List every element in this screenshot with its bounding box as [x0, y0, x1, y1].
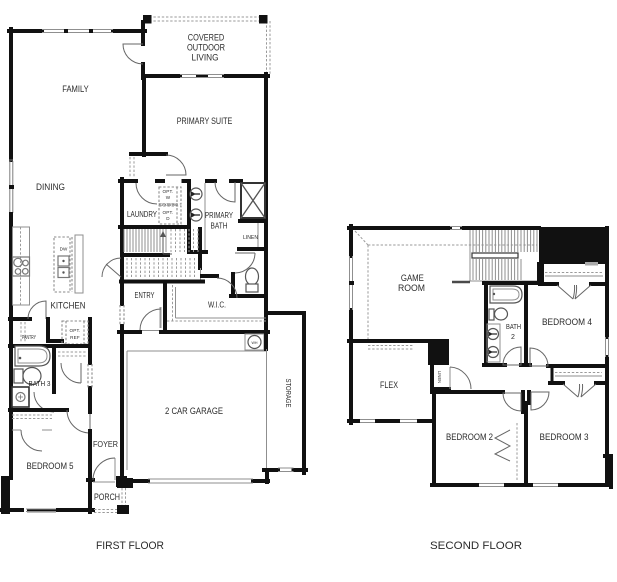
svg-text:COVERED: COVERED [188, 33, 225, 43]
svg-text:BATH: BATH [506, 324, 521, 331]
svg-text:ENTRY: ENTRY [135, 290, 155, 300]
svg-text:WH: WH [252, 341, 258, 345]
svg-text:LINEN: LINEN [437, 371, 442, 383]
svg-text:GAME: GAME [401, 273, 424, 283]
svg-text:W.I.C.: W.I.C. [208, 300, 226, 310]
svg-text:FAMILY: FAMILY [62, 84, 89, 94]
svg-text:PRIMARY SUITE: PRIMARY SUITE [177, 116, 233, 126]
svg-text:W: W [166, 195, 171, 200]
svg-text:DINING: DINING [36, 182, 65, 192]
svg-text:LIVING: LIVING [192, 53, 219, 63]
svg-text:FOYER: FOYER [93, 439, 118, 449]
svg-text:BEDROOM 5: BEDROOM 5 [27, 461, 74, 471]
svg-text:KITCHEN: KITCHEN [51, 301, 86, 311]
svg-text:D: D [166, 216, 170, 221]
svg-text:OPT.: OPT. [162, 210, 173, 215]
svg-text:ROOM: ROOM [398, 283, 425, 293]
svg-text:SECOND FLOOR: SECOND FLOOR [430, 540, 522, 552]
svg-text:LAUNDRY: LAUNDRY [127, 209, 157, 219]
svg-text:OPT.: OPT. [162, 189, 173, 194]
svg-text:BEDROOM 3: BEDROOM 3 [540, 432, 589, 442]
svg-text:BATH 3: BATH 3 [29, 381, 51, 388]
svg-text:FIRST FLOOR: FIRST FLOOR [96, 540, 164, 552]
svg-text:DW: DW [60, 247, 68, 252]
svg-text:PANTRY: PANTRY [22, 335, 36, 341]
svg-text:REF: REF [70, 335, 80, 340]
svg-text:FLEX: FLEX [380, 380, 398, 390]
svg-text:BEDROOM 4: BEDROOM 4 [542, 317, 592, 327]
svg-text:BATH: BATH [211, 221, 228, 231]
svg-text:OUTDOOR: OUTDOOR [187, 43, 225, 53]
svg-text:3'3"X3'5"RC: 3'3"X3'5"RC [159, 203, 178, 207]
svg-text:LINEN: LINEN [243, 235, 258, 241]
svg-text:PRIMARY: PRIMARY [205, 210, 233, 220]
svg-text:OPT.: OPT. [69, 328, 80, 333]
svg-text:STORAGE: STORAGE [284, 379, 291, 408]
svg-text:2: 2 [511, 334, 515, 341]
svg-text:BEDROOM 2: BEDROOM 2 [446, 432, 493, 442]
svg-text:PORCH: PORCH [94, 492, 120, 502]
svg-text:2 CAR GARAGE: 2 CAR GARAGE [165, 406, 223, 416]
